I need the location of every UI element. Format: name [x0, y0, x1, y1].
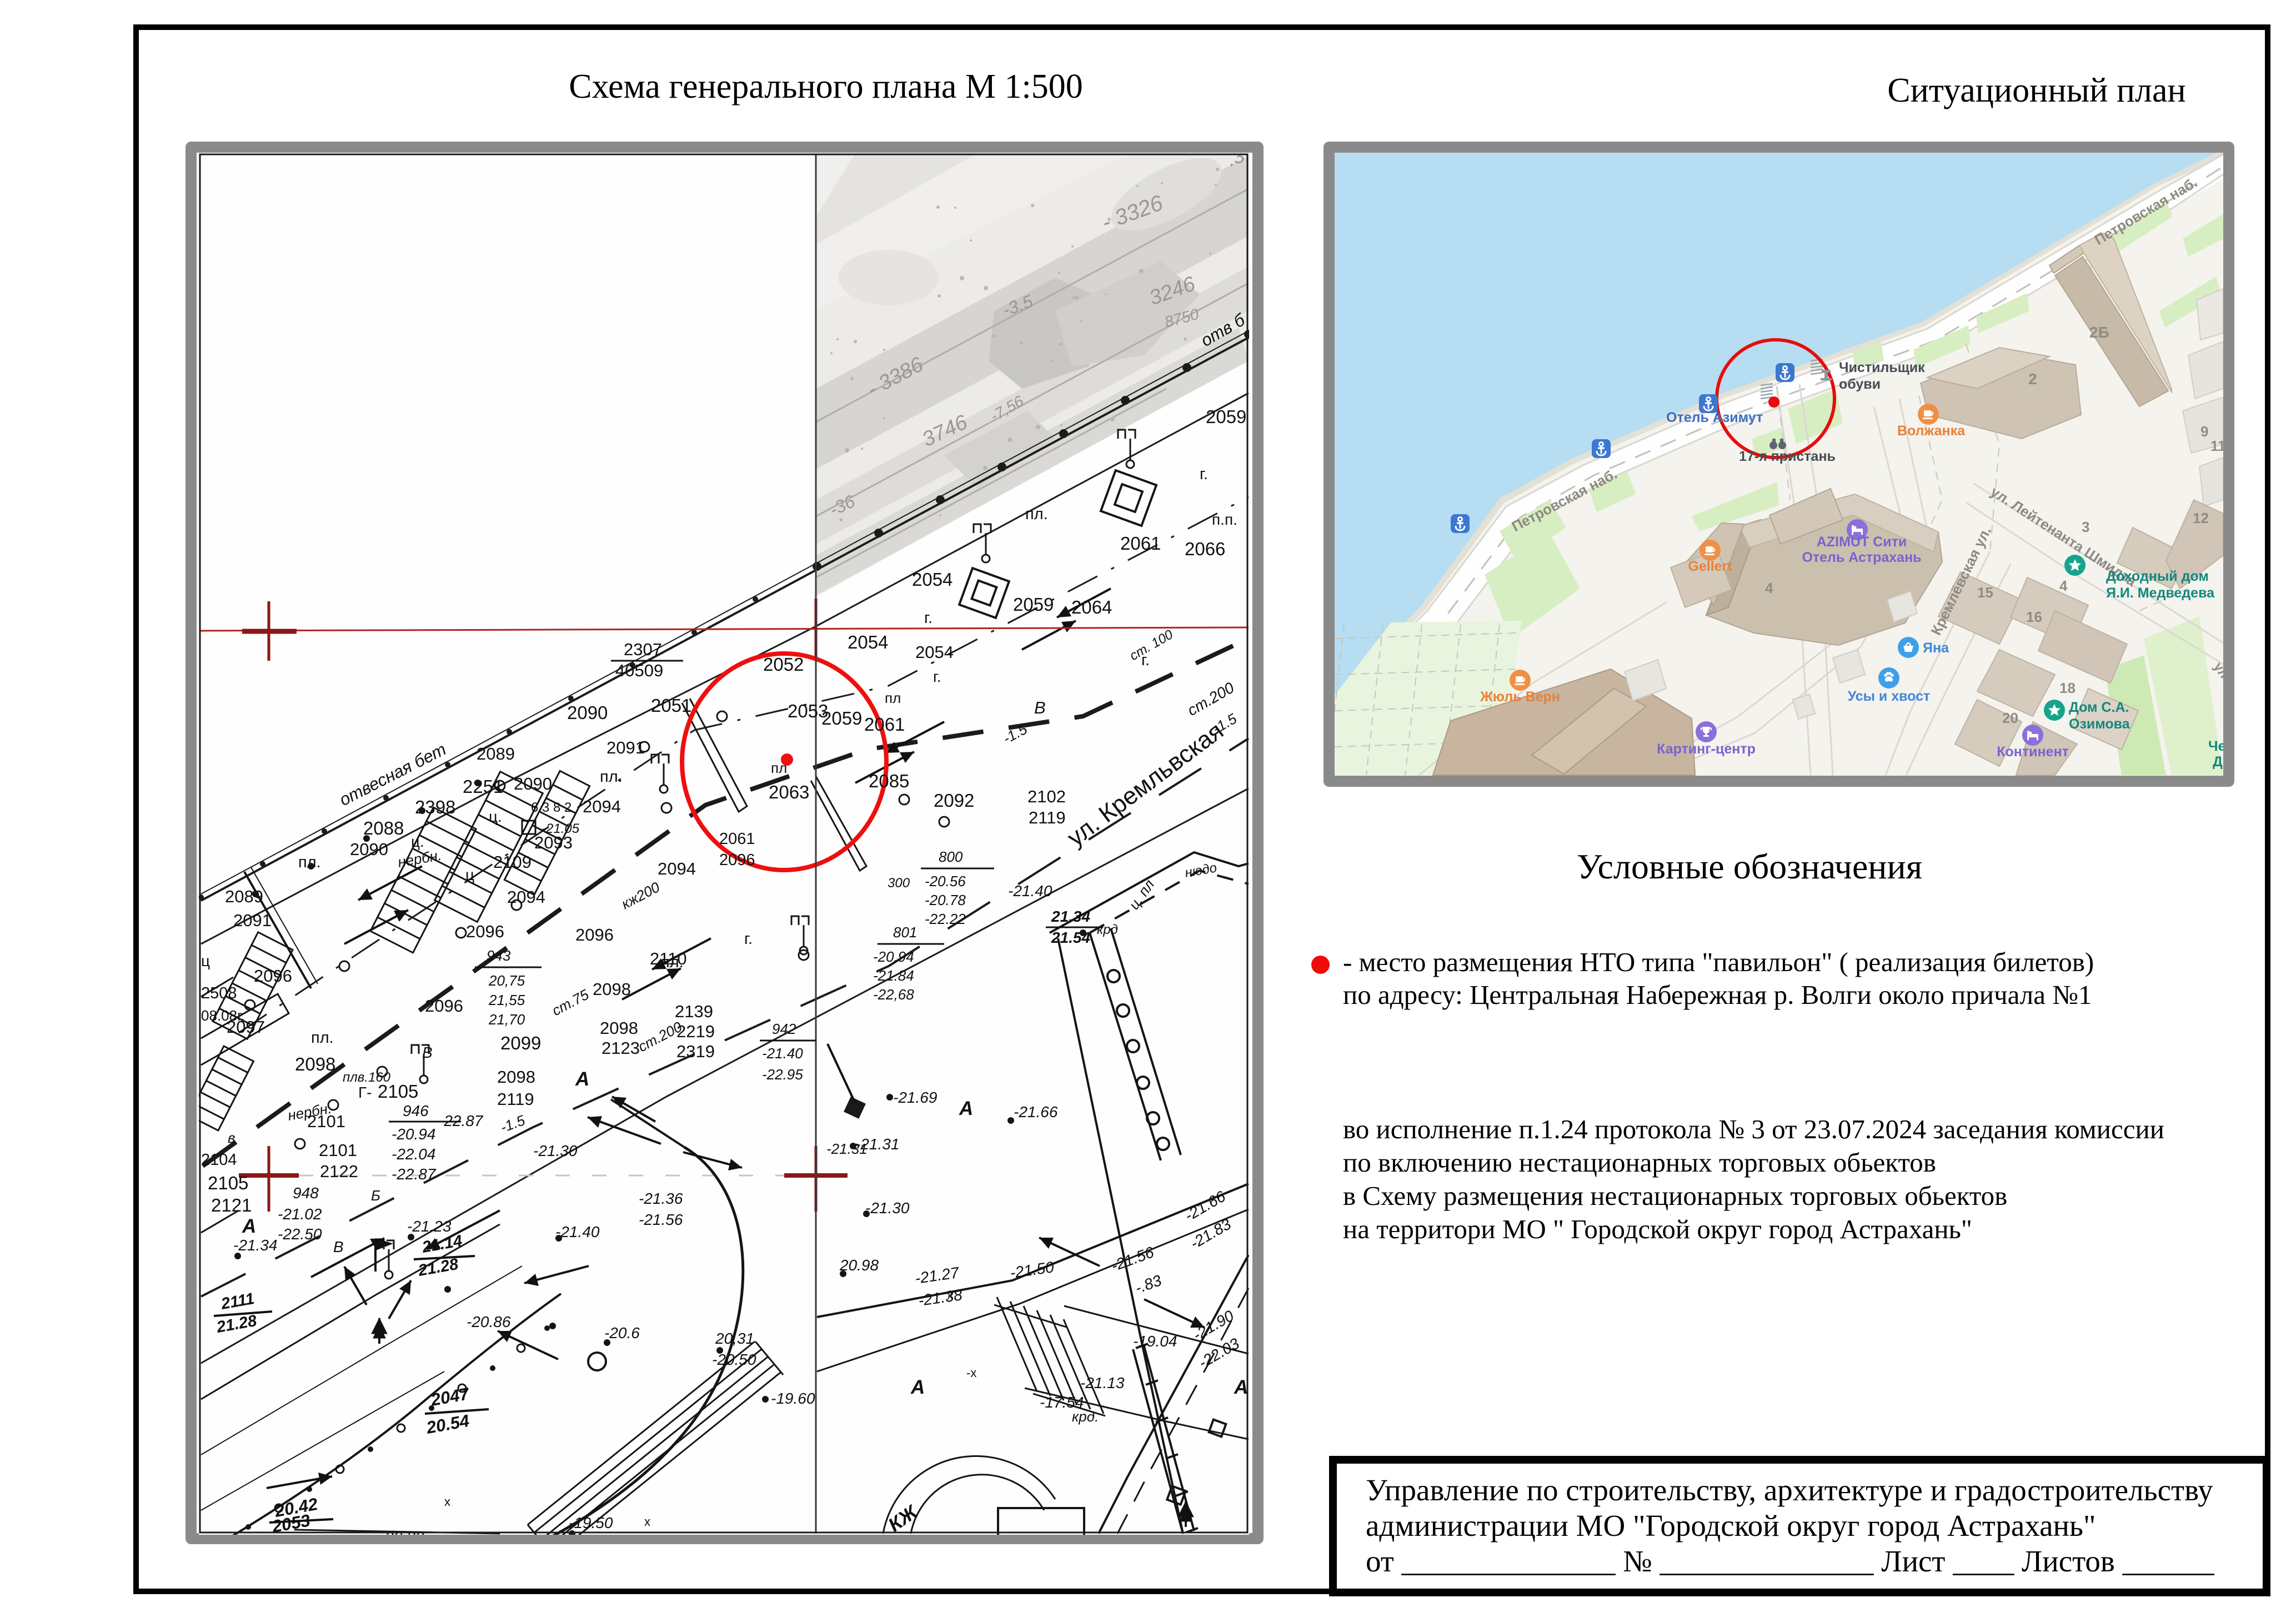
- svg-text:Усы и хвост: Усы и хвост: [1848, 689, 1931, 704]
- svg-text:2054: 2054: [915, 642, 954, 662]
- svg-text:-22.95: -22.95: [762, 1066, 803, 1083]
- svg-text:2508: 2508: [201, 984, 237, 1002]
- svg-text:2098: 2098: [497, 1067, 535, 1087]
- svg-text:2059: 2059: [821, 708, 862, 728]
- svg-text:Дом С.А.: Дом С.А.: [2069, 700, 2129, 715]
- svg-text:17-я пристань: 17-я пристань: [1739, 449, 1836, 464]
- svg-text:-19.60: -19.60: [771, 1390, 815, 1407]
- svg-text:г.: г.: [933, 668, 941, 685]
- svg-text:-20.94: -20.94: [392, 1125, 435, 1143]
- svg-text:4: 4: [1765, 580, 1773, 596]
- svg-text:2088: 2088: [363, 818, 404, 838]
- svg-text:пл: пл: [885, 690, 901, 706]
- svg-text:-20.50: -20.50: [712, 1351, 756, 1368]
- svg-text:Отель Азимут: Отель Азимут: [1666, 410, 1763, 425]
- svg-text:ц.: ц.: [411, 833, 424, 850]
- svg-text:-21.56: -21.56: [639, 1211, 683, 1228]
- svg-text:2061: 2061: [719, 830, 755, 848]
- svg-text:Жюль Верн: Жюль Верн: [1480, 689, 1560, 705]
- svg-text:2099: 2099: [500, 1033, 541, 1053]
- svg-text:Континент: Континент: [1997, 744, 2069, 760]
- svg-text:2139: 2139: [675, 1002, 713, 1021]
- svg-text:-20.78: -20.78: [925, 892, 966, 908]
- svg-text:Волжанка: Волжанка: [1897, 423, 1966, 439]
- svg-text:2096: 2096: [719, 851, 755, 869]
- svg-text:В: В: [422, 1044, 433, 1061]
- svg-text:ц.: ц.: [489, 808, 502, 825]
- svg-text:пл: пл: [771, 760, 787, 776]
- svg-text:2094: 2094: [658, 859, 696, 878]
- svg-text:-20.94: -20.94: [873, 948, 914, 965]
- svg-text:2123: 2123: [601, 1038, 640, 1058]
- svg-text:20,31: 20,31: [715, 1330, 754, 1347]
- svg-text:-19.50: -19.50: [569, 1514, 613, 1531]
- svg-text:В: В: [333, 1238, 344, 1255]
- svg-text:2307: 2307: [624, 640, 662, 659]
- svg-text:2101: 2101: [319, 1140, 357, 1160]
- svg-text:А: А: [959, 1098, 973, 1119]
- svg-text:2091: 2091: [233, 911, 272, 930]
- svg-text:-21.40: -21.40: [1008, 882, 1052, 900]
- svg-text:AZIMUT Сити: AZIMUT Сити: [1817, 534, 1907, 550]
- svg-text:2119: 2119: [497, 1089, 534, 1109]
- svg-text:х: х: [444, 1495, 450, 1509]
- svg-text:2122: 2122: [320, 1162, 358, 1181]
- svg-text:-21.31: -21.31: [826, 1140, 868, 1157]
- svg-text:Gellert: Gellert: [1688, 559, 1732, 574]
- svg-text:943: 943: [487, 947, 511, 964]
- svg-text:Чистильщик: Чистильщик: [1839, 360, 1925, 375]
- svg-text:х: х: [947, 1288, 953, 1302]
- svg-text:20,75: 20,75: [488, 972, 525, 989]
- svg-text:-22.87: -22.87: [392, 1165, 437, 1183]
- svg-text:-21.02: -21.02: [278, 1205, 322, 1223]
- svg-text:плв.160: плв.160: [343, 1070, 391, 1085]
- svg-text:-22.50: -22.50: [278, 1225, 322, 1243]
- svg-text:-17.54: -17.54: [1040, 1394, 1084, 1411]
- svg-text:40509: 40509: [615, 661, 663, 680]
- svg-text:А: А: [575, 1068, 589, 1090]
- svg-text:946: 946: [403, 1102, 429, 1119]
- svg-text:20: 20: [2002, 710, 2018, 726]
- svg-text:ц: ц: [201, 952, 210, 969]
- svg-text:х: х: [644, 1515, 650, 1529]
- svg-text:2090: 2090: [567, 702, 608, 723]
- svg-text:-19.04: -19.04: [1133, 1333, 1177, 1350]
- svg-text:2098: 2098: [600, 1018, 638, 1038]
- svg-text:2059: 2059: [1013, 594, 1054, 615]
- svg-text:пл.: пл.: [600, 768, 623, 786]
- svg-text:-21.69: -21.69: [893, 1089, 937, 1106]
- svg-text:2094: 2094: [583, 797, 621, 816]
- svg-text:В: В: [1034, 698, 1046, 717]
- svg-text:4: 4: [2059, 577, 2068, 594]
- svg-text:2090: 2090: [350, 840, 388, 859]
- svg-text:-21.23: -21.23: [407, 1218, 452, 1235]
- svg-text:-22,68: -22,68: [873, 986, 914, 1003]
- svg-text:2: 2: [2028, 370, 2037, 388]
- svg-text:800: 800: [939, 848, 963, 865]
- svg-text:п.п.: п.п.: [1212, 511, 1237, 528]
- svg-text:2096: 2096: [575, 925, 614, 944]
- svg-text:2Б: 2Б: [2089, 324, 2109, 341]
- svg-text:2092: 2092: [934, 790, 974, 811]
- svg-text:300: 300: [888, 876, 910, 891]
- svg-text:2097: 2097: [227, 1017, 265, 1037]
- svg-text:-21.34: -21.34: [233, 1237, 277, 1254]
- svg-text:2104: 2104: [201, 1151, 237, 1169]
- svg-text:2098: 2098: [295, 1054, 335, 1074]
- svg-text:2105: 2105: [208, 1173, 248, 1193]
- svg-text:-21.30: -21.30: [533, 1142, 578, 1159]
- svg-text:2096: 2096: [254, 966, 292, 986]
- svg-text:2061: 2061: [864, 714, 905, 735]
- svg-text:Г-: Г-: [358, 1084, 372, 1101]
- svg-text:11: 11: [2210, 438, 2223, 454]
- svg-text:крд: крд: [1097, 922, 1118, 937]
- svg-text:пл.: пл.: [311, 1029, 334, 1047]
- svg-text:А: А: [910, 1376, 925, 1398]
- svg-text:-21.30: -21.30: [865, 1199, 910, 1217]
- svg-text:3: 3: [2082, 519, 2089, 535]
- svg-text:Яна: Яна: [1923, 640, 1949, 656]
- svg-text:2119: 2119: [1029, 808, 1066, 827]
- svg-text:2090: 2090: [514, 774, 552, 793]
- svg-text:2059: 2059: [1206, 406, 1246, 427]
- svg-text:15: 15: [1977, 584, 1993, 601]
- svg-text:Б: Б: [371, 1187, 380, 1204]
- svg-text:-21.36: -21.36: [639, 1190, 683, 1207]
- svg-text:2089: 2089: [477, 744, 515, 763]
- svg-text:-20.86: -20.86: [467, 1313, 511, 1330]
- svg-text:2098: 2098: [593, 979, 631, 999]
- svg-text:942: 942: [772, 1021, 796, 1037]
- svg-text:-20.56: -20.56: [925, 873, 966, 890]
- svg-text:16: 16: [2026, 609, 2042, 625]
- svg-text:21,55: 21,55: [488, 992, 525, 1008]
- svg-text:2121: 2121: [211, 1195, 252, 1215]
- svg-text:-21.66: -21.66: [1014, 1103, 1058, 1120]
- svg-text:в: в: [228, 1129, 235, 1146]
- svg-text:-22.22: -22.22: [925, 911, 966, 927]
- svg-text:-22.87: -22.87: [439, 1112, 484, 1129]
- svg-text:2054: 2054: [912, 569, 953, 590]
- svg-text:-21.05: -21.05: [542, 821, 580, 836]
- svg-text:2319: 2319: [676, 1042, 715, 1061]
- svg-text:ц: ц: [465, 866, 474, 883]
- svg-text:-х: -х: [966, 1366, 976, 1380]
- svg-text:2251: 2251: [463, 776, 503, 797]
- svg-text:Отель Астрахань: Отель Астрахань: [1802, 550, 1921, 565]
- svg-text:-21.40: -21.40: [555, 1223, 600, 1240]
- svg-text:-21.13: -21.13: [1080, 1374, 1125, 1391]
- svg-text:пл.: пл.: [1025, 505, 1048, 523]
- svg-text:6 3 8 2: 6 3 8 2: [531, 800, 572, 815]
- svg-text:Доходный дом: Доходный дом: [2106, 569, 2209, 584]
- svg-text:21.34: 21.34: [1051, 908, 1090, 925]
- svg-text:обуви: обуви: [1839, 376, 1881, 392]
- svg-text:2063: 2063: [769, 782, 809, 802]
- svg-text:Картинг-центр: Картинг-центр: [1657, 741, 1756, 757]
- svg-text:2066: 2066: [1185, 539, 1225, 559]
- svg-text:2398: 2398: [415, 797, 455, 817]
- svg-text:2109: 2109: [493, 852, 532, 872]
- svg-text:21,70: 21,70: [488, 1011, 525, 1028]
- svg-text:948: 948: [293, 1184, 319, 1202]
- svg-text:Я.И. Медведева: Я.И. Медведева: [2106, 585, 2215, 601]
- svg-text:-21.84: -21.84: [873, 967, 914, 984]
- svg-text:18: 18: [2059, 680, 2076, 696]
- svg-text:Озимова: Озимова: [2069, 716, 2130, 732]
- svg-text:-22.04: -22.04: [392, 1145, 435, 1163]
- svg-text:г.: г.: [924, 609, 933, 627]
- svg-text:2064: 2064: [1071, 597, 1112, 617]
- svg-text:9: 9: [2200, 423, 2208, 440]
- svg-text:12: 12: [2193, 510, 2209, 526]
- svg-text:2096: 2096: [425, 996, 463, 1016]
- svg-text:Д: Д: [2213, 754, 2223, 770]
- svg-text:А: А: [1234, 1376, 1248, 1398]
- svg-text:2052: 2052: [763, 654, 804, 675]
- svg-text:2110: 2110: [650, 949, 687, 968]
- svg-text:г.: г.: [744, 930, 753, 948]
- svg-text:801: 801: [893, 924, 917, 941]
- svg-text:Че: Че: [2208, 738, 2223, 754]
- svg-text:2054: 2054: [848, 632, 888, 652]
- svg-text:-20.6: -20.6: [604, 1324, 640, 1341]
- svg-text:2096: 2096: [466, 922, 504, 941]
- svg-text:2051: 2051: [651, 695, 691, 716]
- svg-text:А: А: [242, 1215, 256, 1237]
- svg-text:2085: 2085: [869, 771, 909, 791]
- svg-text:2094: 2094: [507, 887, 545, 907]
- svg-text:-21.40: -21.40: [762, 1045, 803, 1062]
- svg-text:г.: г.: [1200, 465, 1208, 483]
- svg-text:2061: 2061: [1120, 533, 1161, 554]
- svg-text:2102: 2102: [1027, 787, 1066, 806]
